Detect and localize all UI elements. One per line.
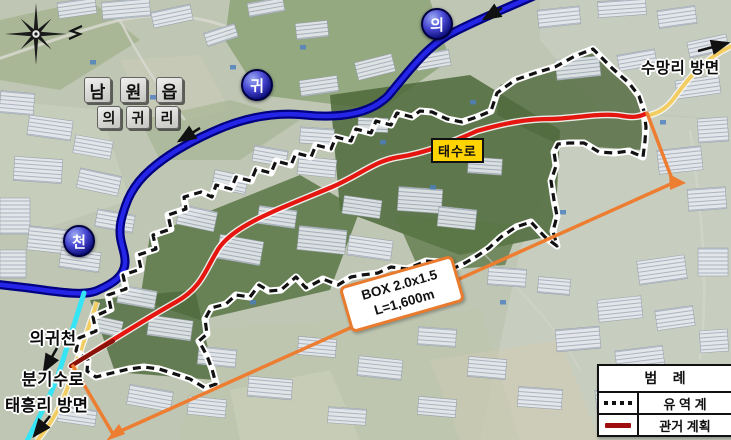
stream-badge-gwi: 귀 [241,69,273,101]
direction-label-taeheungri: 태흥리 방면 [5,396,88,417]
village-label-uigwi-ri: 의 귀 리 [97,106,179,129]
legend: 범 례 유 역 계 관거 계획 [597,364,731,437]
village-char: 귀 [126,106,150,129]
legend-row-pipe-plan: 관거 계획 [599,413,731,435]
stream-badge-ui: 의 [421,8,453,40]
town-char: 읍 [156,77,183,103]
branch-channel-label-line2: 분기수로 [22,371,85,389]
road-badge-taesuro: 태수로 [431,138,484,163]
village-char: 의 [97,106,121,129]
village-char: 리 [155,106,179,129]
watershed-line-symbol [604,401,632,405]
legend-label-pipe-plan: 관거 계획 [639,415,731,435]
town-label-namwon-eup: 남 원 읍 [84,77,183,103]
legend-title: 범 례 [599,366,731,393]
drainage-plan-map: 남 원 읍 의 귀 리 의 귀 천 태수로 수망리 방면 의귀천 분기수로 태흥… [0,0,731,440]
direction-label-sumangri: 수망리 방면 [641,59,720,78]
legend-label-watershed: 유 역 계 [639,393,731,413]
direction-label-branch-channel: 의귀천 분기수로 [2,308,104,391]
stream-badge-cheon: 천 [63,225,95,257]
legend-row-watershed: 유 역 계 [599,393,731,413]
town-char: 원 [120,77,147,103]
town-char: 남 [84,77,111,103]
pipe-plan-line-symbol [605,423,631,428]
branch-channel-label-line1: 의귀천 [29,330,76,348]
